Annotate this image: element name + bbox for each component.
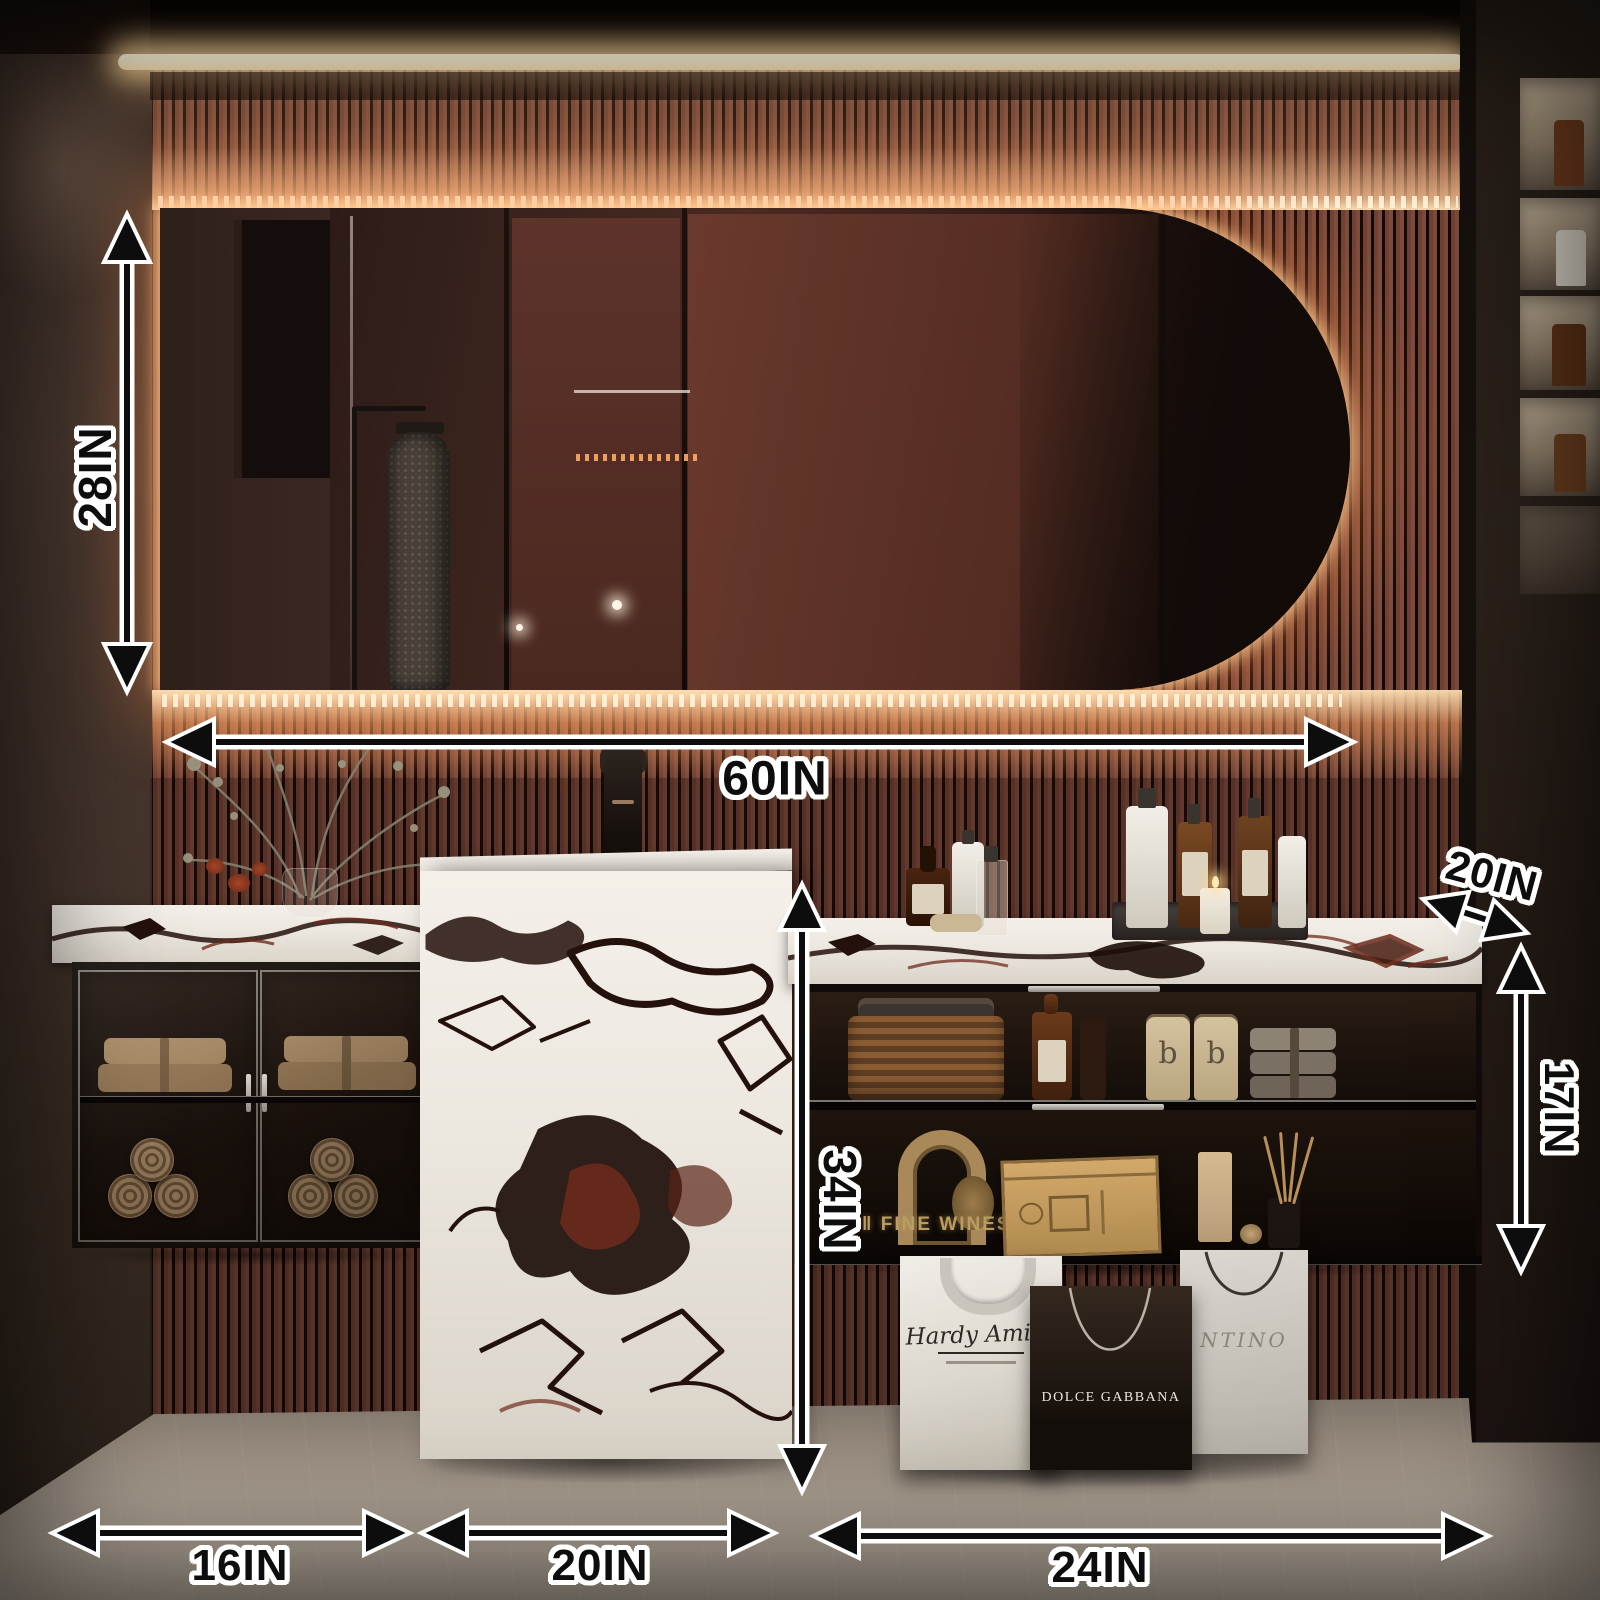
mirror-reflection-small-light	[516, 624, 523, 631]
left-cabinet-shelf	[80, 1096, 432, 1103]
crate-slat	[1100, 1190, 1105, 1234]
door-handle	[246, 1074, 251, 1112]
bottle-pump	[1138, 788, 1156, 808]
bag-brand-text: NTINO	[1180, 1328, 1308, 1352]
bottle-cap	[1248, 798, 1260, 818]
fine-wines-sign: ‖ FINE WINES	[862, 1214, 1022, 1236]
towel-strap	[1290, 1028, 1299, 1098]
b-lotion-bottle: b	[1194, 1014, 1238, 1100]
woven-basket	[848, 1016, 1004, 1100]
bag-text-underline	[938, 1352, 1024, 1354]
bag-handle-cord	[1060, 1286, 1160, 1396]
bag-handle	[940, 1258, 1036, 1315]
dim-label-cabinet-height: 17IN	[1535, 1062, 1583, 1155]
mirror-reflection-stone-column	[388, 432, 450, 690]
pump-bottle-large	[1126, 806, 1168, 928]
crate-slat	[1004, 1172, 1156, 1180]
left-cabinet-body	[72, 962, 440, 1248]
bottle-label	[912, 884, 944, 914]
dim-label-pedestal-width: 20IN	[552, 1541, 649, 1591]
dark-shopping-bag: DOLCE GABBANA	[1030, 1286, 1192, 1470]
amber-bottle-neck	[1044, 994, 1058, 1014]
dim-label-pedestal-height: 34IN	[813, 1149, 867, 1250]
counter-bottle-neck	[920, 846, 936, 872]
mirror-panel-gap	[504, 208, 509, 690]
display-niche	[1520, 78, 1600, 190]
glass-tint	[72, 962, 440, 1248]
tray-white-bottle	[1278, 836, 1306, 928]
dried-red-flower	[228, 874, 250, 892]
mirror-reflection-door	[234, 220, 330, 478]
mirror-reflection-shower-arm	[352, 406, 426, 411]
wooden-crate	[1000, 1155, 1161, 1258]
display-niche	[1520, 398, 1600, 496]
display-niche	[1520, 296, 1600, 390]
crate-sketch	[1019, 1202, 1044, 1225]
white-bottle-icon	[1556, 230, 1586, 286]
reed-diffuser-base	[1268, 1198, 1300, 1248]
led-dots-below-mirror	[162, 694, 1342, 707]
bottle-cap	[1188, 804, 1200, 824]
right-column-edge-shadow	[1460, 0, 1476, 1600]
bottle-cap	[962, 830, 974, 844]
dried-red-flower	[252, 862, 267, 876]
amber-bottle-icon	[1554, 120, 1584, 186]
candle	[1200, 888, 1230, 934]
dim-label-left-cabinet-width: 16IN	[192, 1541, 289, 1591]
soap-dish	[930, 914, 982, 932]
bottle-label	[1038, 1040, 1066, 1082]
display-niche	[1520, 198, 1600, 290]
bag-handle-cord	[1198, 1250, 1290, 1320]
gray-towel-stack	[1250, 1028, 1336, 1100]
dark-bottle	[1080, 1018, 1106, 1100]
bag-subtext-line	[946, 1361, 1016, 1364]
wall-shade-top	[150, 0, 1468, 54]
door-handle	[262, 1074, 267, 1112]
beige-box	[1198, 1152, 1232, 1242]
cabinet-underside-shadow	[795, 1258, 1483, 1278]
drawer-handle	[1028, 986, 1160, 992]
mirror-reflection-led-dots	[576, 454, 702, 461]
bottle-letter: b	[1146, 1036, 1190, 1071]
ceiling-led-strip	[118, 54, 1464, 70]
mirror-reflection-light-line	[574, 390, 690, 393]
back-shopping-bag: NTINO	[1180, 1250, 1308, 1454]
led-dots-above-mirror	[158, 196, 1458, 208]
marble-pedestal-basin	[420, 871, 792, 1459]
backlit-pill-mirror	[160, 208, 1350, 690]
dispenser-pump	[984, 846, 998, 862]
amber-bottle-icon	[1552, 324, 1586, 386]
backlight-glow-above-mirror	[152, 96, 1468, 210]
amber-bottle-icon	[1554, 434, 1586, 492]
glass-vase	[282, 868, 338, 918]
mirror-panel-gap	[682, 208, 687, 690]
bottle-letter: b	[1194, 1036, 1238, 1071]
display-niche-dim	[1520, 506, 1600, 594]
bottle-label	[1242, 850, 1268, 896]
wall-faucet-light	[612, 800, 634, 804]
dried-red-flower	[206, 858, 224, 874]
dim-label-mirror-height: 28IN	[68, 426, 122, 527]
dim-label-right-cabinet-width: 24IN	[1052, 1543, 1149, 1593]
dim-label-mirror-width: 60IN	[722, 752, 827, 807]
bathroom-vanity-dimension-photo: b b ‖ FINE WINES	[0, 0, 1600, 1600]
round-knob-decor	[1240, 1224, 1262, 1244]
crate-sketch	[1049, 1195, 1090, 1232]
mirror-reflection-small-light	[612, 600, 622, 610]
b-lotion-bottle: b	[1146, 1014, 1190, 1100]
drawer-handle	[1032, 1104, 1164, 1110]
mirror-reflection-shower-pipe	[352, 408, 357, 690]
marble-veins	[420, 871, 792, 1459]
cabinet-underside-shadow	[70, 1244, 442, 1266]
candle-flame	[1212, 876, 1219, 888]
